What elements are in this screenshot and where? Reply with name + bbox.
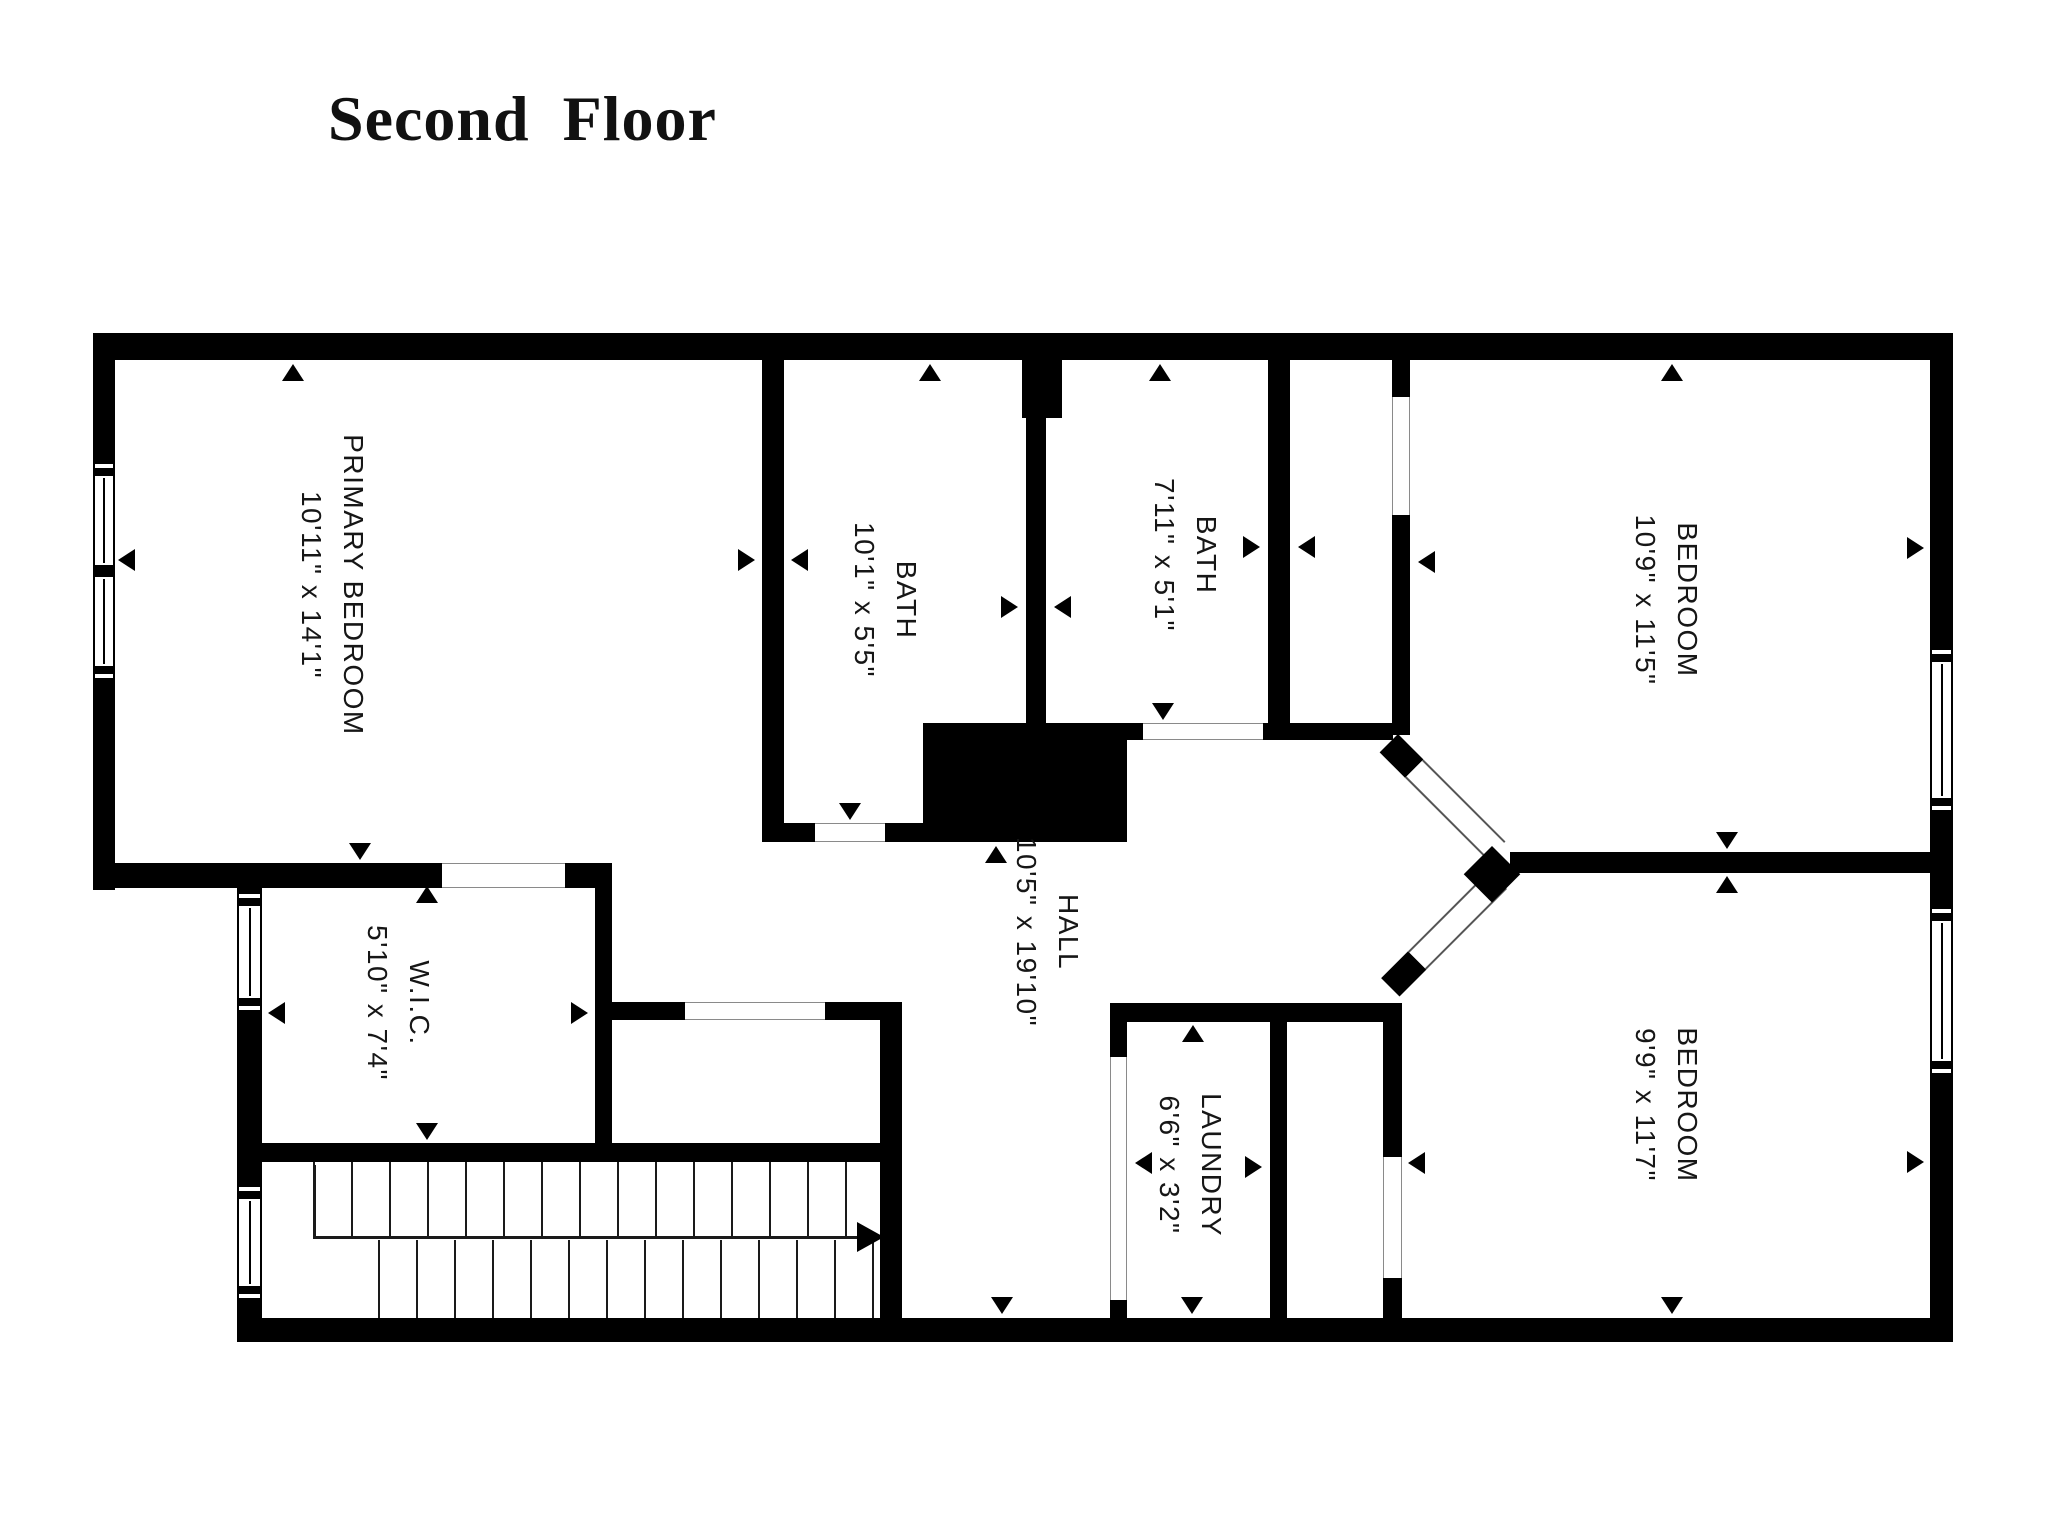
window-frame [239,1191,260,1199]
dimension-arrow-icon [1298,536,1315,558]
dimension-arrow-icon [1907,1151,1924,1173]
stair-tread [682,1240,684,1318]
stair-tread [655,1162,657,1238]
stair-tread [834,1240,836,1318]
dimension-arrow-icon [1181,1297,1203,1314]
window-glazing-line [249,908,251,996]
room-dimensions: 9'9" x 11'7" [1624,1027,1666,1182]
wall-segment [762,360,784,823]
wall-segment [1110,1003,1402,1022]
wall-segment [1110,1300,1127,1318]
dimension-arrow-icon [349,843,371,860]
dimension-arrow-icon [1716,876,1738,893]
wall-segment [237,1143,902,1162]
window-frame [239,1286,260,1294]
room-dimensions: 10'11" x 14'1" [290,434,332,736]
stair-tread [693,1162,695,1238]
stair-tread [427,1162,429,1238]
room-name: PRIMARY BEDROOM [332,434,374,736]
stair-tread [845,1162,847,1238]
wall-segment [1263,723,1393,740]
door-leaf [1405,759,1505,859]
room-dimensions: 6'6" x 3'2" [1148,1093,1190,1237]
solid-core-block [923,723,1127,842]
door-opening [815,823,885,842]
wall-segment [1392,360,1410,397]
wall-segment [1383,1278,1402,1318]
door-opening [1392,397,1410,515]
window-glazing-line [249,1201,251,1284]
window-glazing-line [1941,664,1943,796]
room-dimensions: 10'1" x 5'5" [843,522,885,678]
window-glazing-line [103,579,105,664]
stair-tread [389,1162,391,1238]
door-opening [442,863,565,888]
stair-direction-arrow-icon [857,1222,884,1252]
room-name: W.I.C. [398,925,440,1081]
dimension-arrow-icon [1001,596,1018,618]
stair-direction-line [313,1236,858,1239]
dimension-arrow-icon [1408,1152,1425,1174]
wall-segment [1026,360,1046,723]
dimension-arrow-icon [282,364,304,381]
stair-tread [606,1240,608,1318]
dimension-arrow-icon [1418,551,1435,573]
floor-plan-page: Second Floor PRIMARY BEDROOM10'11" x 14'… [0,0,2048,1536]
room-dimensions: 10'9" x 11'5" [1624,515,1666,686]
stair-tread [617,1162,619,1238]
window-frame [95,468,113,476]
dimension-arrow-icon [416,1123,438,1140]
stair-tread [530,1240,532,1318]
room-name: HALL [1047,837,1089,1027]
room-name: BATH [1185,478,1227,632]
dimension-arrow-icon [791,549,808,571]
window-frame [1932,913,1951,921]
wall-segment [1510,852,1932,873]
dimension-arrow-icon [1054,596,1071,618]
wall-segment [762,823,815,842]
room-dimensions: 5'10" x 7'4" [356,925,398,1081]
window-frame [95,666,113,674]
room-name: BEDROOM [1666,1027,1708,1182]
dimension-arrow-icon [1152,703,1174,720]
wall-segment [1110,1022,1127,1057]
stair-tread [807,1162,809,1238]
dimension-arrow-icon [118,549,135,571]
wall-segment [1392,515,1410,735]
dimension-arrow-icon [571,1002,588,1024]
window-frame [239,898,260,906]
room-name: LAUNDRY [1190,1093,1232,1237]
dimension-arrow-icon [416,886,438,903]
wall-segment [612,1002,685,1020]
stair-tread [541,1162,543,1238]
wall-segment [1270,1022,1287,1318]
dimension-arrow-icon [991,1297,1013,1314]
door-opening [685,1002,825,1020]
diagonal-door-opening [1380,734,1506,860]
dimension-arrow-icon [738,549,755,571]
stair-tread [465,1162,467,1238]
dimension-arrow-icon [839,803,861,820]
dimension-arrow-icon [1149,364,1171,381]
dimension-arrow-icon [1182,1025,1204,1042]
room-dimensions: 7'11" x 5'1" [1143,478,1185,632]
window-frame [1932,798,1951,806]
dimension-arrow-icon [1661,1297,1683,1314]
stair-direction-line [313,1165,316,1239]
stair-tread [351,1162,353,1238]
wall-segment [1127,723,1143,740]
stair-tread [378,1240,380,1318]
window-mullion [95,565,113,577]
wall-segment [1930,333,1953,1342]
dimension-arrow-icon [1245,1156,1262,1178]
wall-segment [1268,360,1290,740]
door-opening [1383,1157,1402,1278]
stair-tread [796,1240,798,1318]
dimension-arrow-icon [1661,364,1683,381]
wall-segment [93,863,442,888]
stair-tread [644,1240,646,1318]
window-frame [1932,654,1951,662]
dimension-arrow-icon [1907,537,1924,559]
room-name: BEDROOM [1666,515,1708,686]
dimension-arrow-icon [919,364,941,381]
window-frame [1932,1061,1951,1069]
window-glazing-line [1941,923,1943,1059]
stair-tread [503,1162,505,1238]
wall-segment [1383,1015,1402,1157]
dimension-arrow-icon [1243,536,1260,558]
stair-tread [758,1240,760,1318]
stair-tread [454,1240,456,1318]
stair-tread [731,1162,733,1238]
stair-tread [579,1162,581,1238]
wall-segment [595,863,612,1143]
door-opening [1110,1057,1127,1300]
window-glazing-line [103,478,105,563]
page-title: Second Floor [328,82,717,156]
wall-segment [885,823,923,842]
wall-segment [237,1318,1953,1342]
dimension-arrow-icon [268,1002,285,1024]
stair-tread [492,1240,494,1318]
stair-tread [720,1240,722,1318]
stair-tread [416,1240,418,1318]
stair-tread [769,1162,771,1238]
door-opening [1143,723,1263,740]
room-name: BATH [885,522,927,678]
stair-tread [568,1240,570,1318]
dimension-arrow-icon [1716,832,1738,849]
window-frame [239,998,260,1006]
dimension-arrow-icon [985,846,1007,863]
room-dimensions: 10'5" x 19'10" [1005,837,1047,1027]
